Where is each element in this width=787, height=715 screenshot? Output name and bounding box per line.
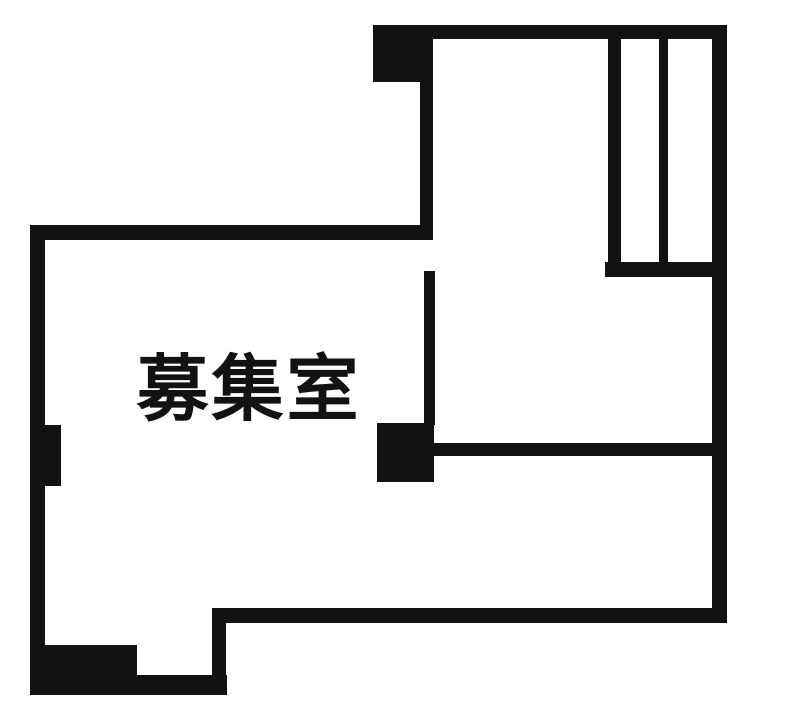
right-wall	[712, 25, 727, 623]
partition-wall-vertical	[424, 271, 435, 425]
top-corner-block	[373, 25, 433, 82]
center-pillar	[377, 423, 434, 482]
left-wall-pillar	[45, 425, 61, 486]
left-wall	[30, 225, 45, 695]
bottom-wall	[30, 675, 227, 695]
shaft-bottom-wall	[605, 262, 715, 277]
bottom-right-wall	[212, 608, 727, 623]
main-room-top-wall	[30, 225, 433, 240]
floor-plan: 募集室	[0, 0, 787, 715]
partition-wall-horizontal	[430, 443, 715, 456]
shaft-divider-wall	[659, 30, 668, 268]
room-label: 募集室	[133, 344, 365, 434]
shaft-left-wall	[608, 27, 621, 277]
upper-room-left-wall	[420, 82, 433, 240]
